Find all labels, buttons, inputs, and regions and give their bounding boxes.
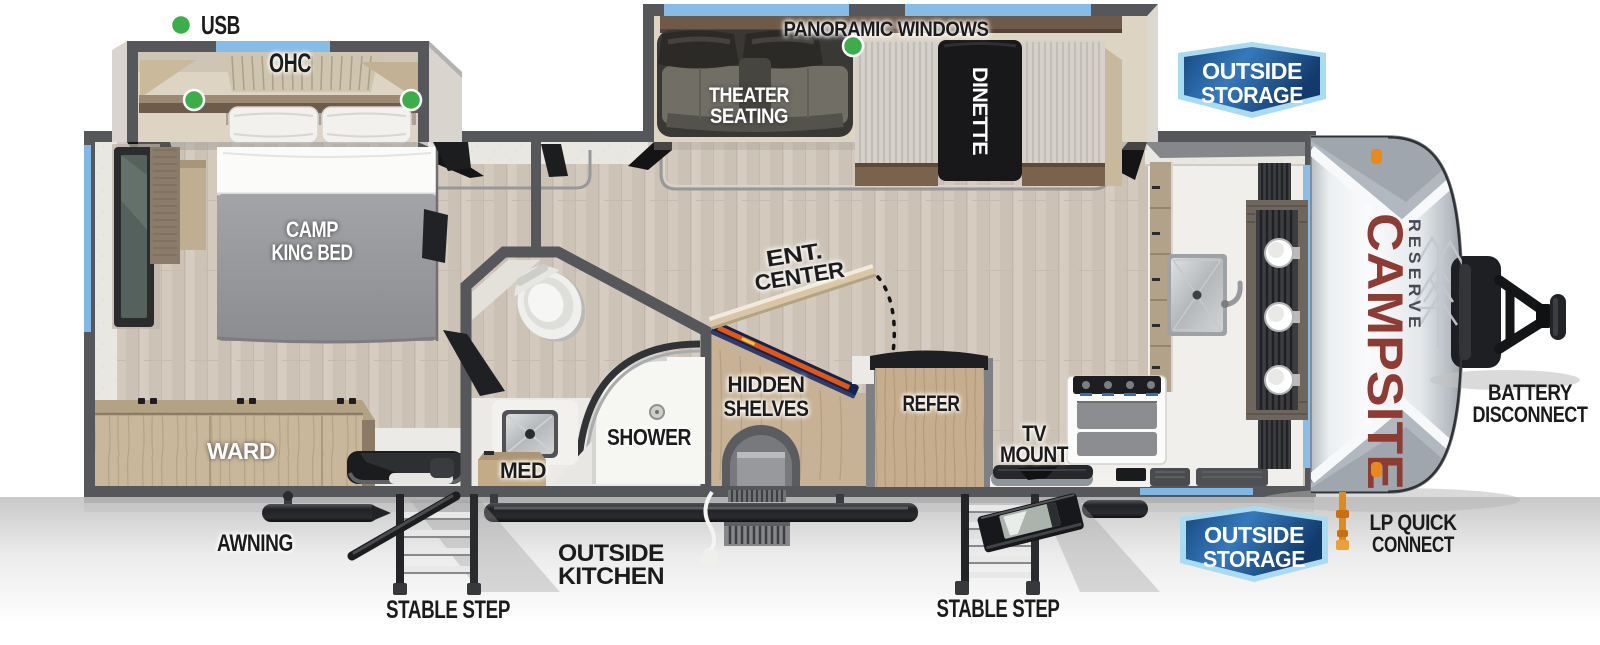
svg-text:STORAGE: STORAGE xyxy=(1203,546,1305,572)
svg-text:CAMPSITE: CAMPSITE xyxy=(1357,213,1413,490)
svg-text:CAMP: CAMP xyxy=(286,217,338,242)
svg-text:SEATING: SEATING xyxy=(710,105,788,128)
svg-text:RESERVE: RESERVE xyxy=(1405,219,1424,332)
svg-text:DISCONNECT: DISCONNECT xyxy=(1473,402,1589,427)
svg-text:STORAGE: STORAGE xyxy=(1201,82,1303,108)
svg-text:OUTSIDE: OUTSIDE xyxy=(1202,58,1302,84)
svg-text:STABLE STEP: STABLE STEP xyxy=(937,595,1060,623)
svg-text:DINETTE: DINETTE xyxy=(968,67,991,155)
svg-text:WARD: WARD xyxy=(207,438,275,464)
svg-text:OHC: OHC xyxy=(269,48,311,78)
svg-text:KING BED: KING BED xyxy=(272,240,353,265)
svg-text:HIDDEN: HIDDEN xyxy=(728,372,805,397)
svg-text:USB: USB xyxy=(201,10,240,40)
svg-text:MED: MED xyxy=(500,458,546,483)
svg-text:AWNING: AWNING xyxy=(217,530,293,557)
svg-text:OUTSIDE: OUTSIDE xyxy=(1204,522,1304,548)
svg-text:MOUNT: MOUNT xyxy=(1000,442,1069,467)
svg-text:REFER: REFER xyxy=(903,391,960,416)
svg-text:KITCHEN: KITCHEN xyxy=(558,563,664,590)
svg-text:SHOWER: SHOWER xyxy=(607,424,692,450)
svg-text:SHELVES: SHELVES xyxy=(724,396,809,421)
svg-text:PANORAMIC WINDOWS: PANORAMIC WINDOWS xyxy=(784,18,989,41)
svg-text:CONNECT: CONNECT xyxy=(1372,532,1455,557)
svg-text:STABLE STEP: STABLE STEP xyxy=(386,596,510,624)
svg-text:THEATER: THEATER xyxy=(709,84,789,107)
